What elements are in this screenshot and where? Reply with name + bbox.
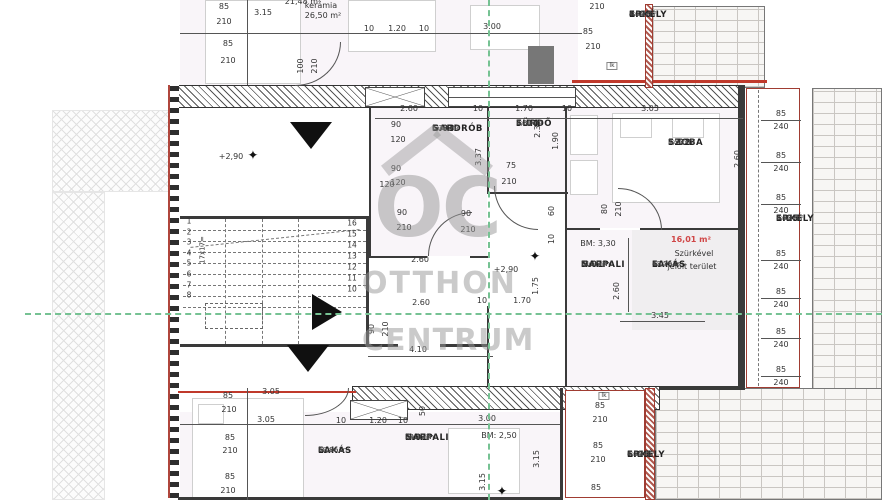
annotation: lk [606, 62, 617, 70]
stair-number: 3 [187, 238, 192, 247]
dimension-label: 80 [601, 204, 609, 214]
dimension-label: 210 [220, 487, 235, 495]
dimension-label: 85 [225, 434, 235, 442]
dimension-label: 90 [391, 165, 401, 173]
dimension-label: 120 [379, 181, 394, 189]
dimension-label: 210 [311, 58, 319, 73]
dimension-label: 85 [225, 473, 235, 481]
dimension-label: 240 [773, 379, 788, 387]
annotation: +2,90 [494, 266, 519, 274]
dimension-label: 85 [776, 288, 786, 296]
dim-line [761, 338, 801, 339]
generated-labels: 5.03GARDRÓBkerámia6,77 m²5.04FÜRDŐkerámi… [0, 0, 882, 500]
dimension-label: 90 [391, 121, 401, 129]
dimension-label: 210 [221, 406, 236, 414]
dimension-label: 10 [562, 105, 572, 113]
stair-number: 14 [347, 241, 357, 250]
dimension-label: 210 [222, 447, 237, 455]
dimension-label: 210 [589, 3, 604, 11]
dimension-label: 210 [592, 416, 607, 424]
dim-line [761, 162, 801, 163]
dimension-label: 2.60 [734, 150, 742, 168]
level-marker-icon: ✦ [248, 150, 259, 163]
axis-line-horizontal [25, 313, 882, 315]
dimension-label: 210 [585, 43, 600, 51]
stair-number: 2 [187, 227, 192, 236]
stair-number: 10 [347, 285, 357, 294]
level-marker-icon: ✦ [497, 486, 508, 499]
annotation: BM: 2,50 [481, 432, 516, 440]
dimension-label: 85 [593, 442, 603, 450]
dimension-label: 210 [216, 18, 231, 26]
stair-number: 13 [347, 252, 357, 261]
dimension-label: 90 [397, 209, 407, 217]
dimension-label: 210 [382, 321, 390, 336]
stair-number: 5 [187, 259, 192, 268]
dimension-label: 60 [548, 206, 556, 216]
dimension-label: 85 [776, 110, 786, 118]
dim-line [761, 260, 801, 261]
dimension-label: 1.70 [513, 297, 531, 305]
dimension-label: 50 [419, 406, 427, 416]
dimension-label: 210 [460, 226, 475, 234]
dimension-label: 210 [615, 201, 623, 216]
dimension-label: 85 [583, 28, 593, 36]
stair-number: 6 [187, 270, 192, 279]
dimension-label: 10 [364, 25, 374, 33]
dimension-label: 2.60 [613, 282, 621, 300]
annotation: BM: 3,30 [580, 240, 615, 248]
stair-number: 12 [347, 263, 357, 272]
partial-label: 26,50 m² [305, 12, 341, 20]
stair-number: 7 [187, 280, 192, 289]
dimension-label: 85 [776, 366, 786, 374]
dimension-label: 90 [368, 324, 376, 334]
dimension-label: 240 [773, 341, 788, 349]
dimension-label: 210 [220, 57, 235, 65]
annotation: Szürkével [675, 250, 714, 258]
dimension-label: 3.05 [262, 388, 280, 396]
dimension-label: 1.70 [515, 105, 533, 113]
dimension-label: 85 [223, 392, 233, 400]
dim-line [761, 120, 801, 121]
dimension-label: 240 [773, 123, 788, 131]
dimension-label: 85 [591, 484, 601, 492]
partial-label: kerámia [305, 2, 337, 10]
level-marker-icon: ✦ [530, 251, 541, 264]
axis-line-vertical [488, 0, 490, 500]
dimension-label: 85 [223, 40, 233, 48]
dimension-label: 210 [396, 224, 411, 232]
dimension-label: 90 [461, 210, 471, 218]
dimension-label: 100 [297, 58, 305, 73]
dimension-label: 3.00 [483, 23, 501, 31]
dimension-label: 85 [776, 152, 786, 160]
dimension-label: 10 [398, 417, 408, 425]
dimension-label: 3.15 [254, 9, 272, 17]
dimension-label: 1.75 [532, 277, 540, 295]
dimension-label: 85 [776, 328, 786, 336]
dimension-label: 4.10 [409, 346, 427, 354]
dimension-label: 240 [773, 263, 788, 271]
dimension-label: 10 [419, 25, 429, 33]
dimension-label: 3.15 [479, 473, 487, 491]
dimension-label: 85 [219, 3, 229, 11]
dimension-label: 3.05 [257, 416, 275, 424]
stair-number: 15 [347, 230, 357, 239]
dimension-label: 240 [773, 165, 788, 173]
annotation: 16,01 m² [671, 236, 711, 244]
dim-line [761, 298, 801, 299]
dimension-label: 2.60 [400, 105, 418, 113]
dimension-label: 210 [590, 456, 605, 464]
dim-line [761, 376, 801, 377]
dimension-label: 3.37 [475, 148, 483, 166]
dimension-label: 10 [548, 234, 556, 244]
dimension-label: 210 [501, 178, 516, 186]
dimension-label: 1.20 [369, 417, 387, 425]
dimension-label: 85 [776, 250, 786, 258]
floor-plan: OC OTTHON CENTRUM 5.03GARDRÓBkerámia6,77… [0, 0, 882, 500]
dimension-label: 10 [473, 105, 483, 113]
dimension-label: 1.20 [388, 25, 406, 33]
dimension-label: 10 [477, 297, 487, 305]
dim-line [761, 204, 801, 205]
dimension-label: 85 [595, 402, 605, 410]
dimension-label: 3.15 [533, 450, 541, 468]
stair-number: 4 [187, 248, 192, 257]
dimension-label: 2.60 [411, 256, 429, 264]
stair-number: 1 [187, 217, 192, 226]
dimension-label: 75 [506, 162, 516, 170]
stair-number: 16 [347, 219, 357, 228]
dimension-label: 10 [336, 417, 346, 425]
dimension-label: 85 [776, 194, 786, 202]
stair-number: 8 [187, 291, 192, 300]
dimension-label: 240 [773, 301, 788, 309]
dimension-label: 120 [390, 136, 405, 144]
annotation: 17x17= [200, 236, 207, 264]
dimension-label: 1.90 [552, 132, 560, 150]
dimension-label: 2.60 [412, 299, 430, 307]
annotation: +2,90 [219, 153, 244, 161]
stair-number: 11 [347, 274, 357, 283]
dimension-label: 3.05 [641, 105, 659, 113]
dimension-label: 3.00 [478, 415, 496, 423]
annotation: lk [598, 392, 609, 400]
